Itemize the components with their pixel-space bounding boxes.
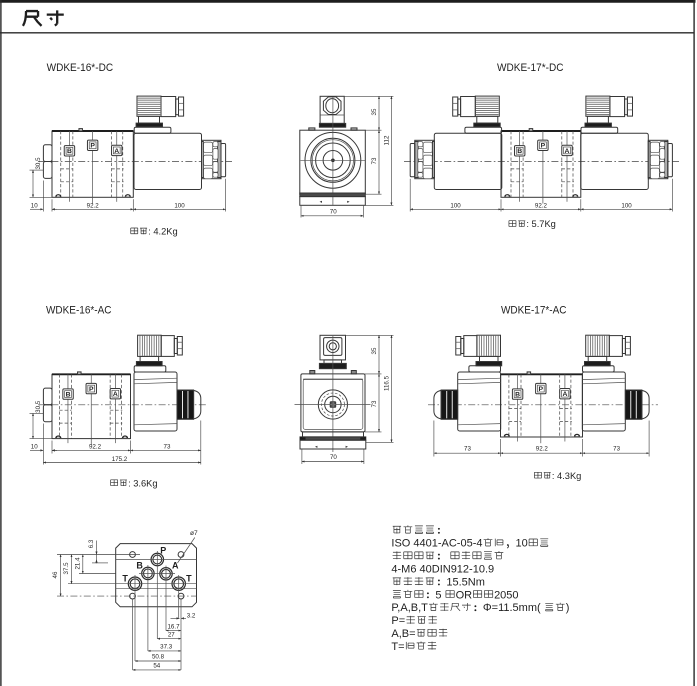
svg-text:T: T — [122, 574, 128, 584]
svg-text:2050: 2050 — [494, 589, 518, 601]
svg-text:10: 10 — [31, 203, 38, 210]
svg-text:ø7: ø7 — [190, 530, 198, 537]
svg-text:35: 35 — [371, 108, 378, 115]
svg-text:175.2: 175.2 — [112, 456, 128, 463]
svg-text:73: 73 — [164, 444, 171, 451]
svg-text:6.3: 6.3 — [88, 539, 95, 548]
svg-text:73: 73 — [371, 157, 378, 164]
svg-text:: 5.7Kg: : 5.7Kg — [526, 219, 555, 229]
svg-text:A,B=: A,B= — [391, 628, 415, 640]
svg-text:WDKE-16*-DC: WDKE-16*-DC — [47, 62, 114, 74]
svg-text:100: 100 — [621, 203, 632, 210]
svg-text:116.5: 116.5 — [383, 375, 390, 391]
svg-text:10: 10 — [31, 444, 38, 451]
svg-text:P: P — [541, 143, 546, 150]
svg-text:100: 100 — [450, 203, 461, 210]
svg-text:37.5: 37.5 — [63, 562, 70, 575]
svg-text:ISO 4401-AC-05-4: ISO 4401-AC-05-4 — [391, 538, 482, 550]
svg-text:35: 35 — [371, 347, 378, 354]
svg-text:B: B — [136, 560, 143, 570]
svg-text:P: P — [160, 546, 166, 556]
svg-text:: 4.3Kg: : 4.3Kg — [552, 471, 581, 481]
svg-text:A: A — [565, 148, 570, 155]
svg-text:15.5Nm: 15.5Nm — [446, 576, 485, 588]
svg-text:B: B — [67, 148, 72, 155]
svg-text:30.5: 30.5 — [35, 400, 42, 413]
svg-text:92.2: 92.2 — [535, 203, 548, 210]
svg-text:B: B — [66, 392, 71, 399]
svg-text:A: A — [114, 148, 119, 155]
svg-text:WDKE-16*-AC: WDKE-16*-AC — [46, 305, 112, 317]
svg-text:4-M6 40DIN912-10.9: 4-M6 40DIN912-10.9 — [391, 564, 494, 576]
svg-text:Φ=11.5mm(: Φ=11.5mm( — [483, 602, 541, 614]
svg-text:B: B — [515, 392, 520, 399]
svg-text:P: P — [90, 143, 95, 150]
svg-text:100: 100 — [174, 203, 185, 210]
svg-text:): ) — [566, 602, 570, 614]
svg-text:: 4.2Kg: : 4.2Kg — [148, 227, 177, 237]
svg-text:OR: OR — [456, 589, 473, 601]
svg-text:WDKE-17*-DC: WDKE-17*-DC — [497, 62, 564, 74]
svg-text:112: 112 — [383, 135, 390, 145]
svg-text:27: 27 — [168, 632, 175, 639]
svg-text:3.2: 3.2 — [187, 613, 196, 620]
svg-text:70: 70 — [330, 454, 337, 461]
svg-text:P,A,B,T: P,A,B,T — [391, 602, 428, 614]
svg-text:10: 10 — [516, 538, 528, 550]
svg-text:P=: P= — [391, 615, 405, 627]
svg-text:21.4: 21.4 — [74, 557, 81, 570]
svg-text:46: 46 — [52, 571, 59, 578]
svg-text:54: 54 — [153, 663, 160, 670]
svg-text:T=: T= — [391, 641, 404, 653]
svg-text:37.3: 37.3 — [160, 643, 173, 650]
svg-text:T: T — [186, 574, 192, 584]
svg-text:16.7: 16.7 — [167, 624, 180, 631]
svg-text:P: P — [89, 386, 94, 393]
svg-text:A: A — [562, 391, 567, 398]
svg-text:WDKE-17*-AC: WDKE-17*-AC — [501, 305, 567, 317]
svg-text:: 3.6Kg: : 3.6Kg — [128, 478, 157, 488]
svg-text:73: 73 — [371, 400, 378, 407]
svg-text:70: 70 — [330, 208, 337, 215]
svg-text:73: 73 — [613, 446, 620, 453]
svg-text:P: P — [539, 386, 544, 393]
svg-text:A: A — [113, 391, 118, 398]
svg-text:50.8: 50.8 — [152, 654, 165, 661]
svg-text:30.5: 30.5 — [35, 157, 42, 170]
svg-text:73: 73 — [464, 446, 471, 453]
svg-text:92.2: 92.2 — [89, 444, 102, 451]
svg-text:92.2: 92.2 — [536, 446, 549, 453]
svg-text:B: B — [517, 148, 522, 155]
svg-text:92.2: 92.2 — [87, 203, 100, 210]
svg-text:5: 5 — [435, 589, 441, 601]
